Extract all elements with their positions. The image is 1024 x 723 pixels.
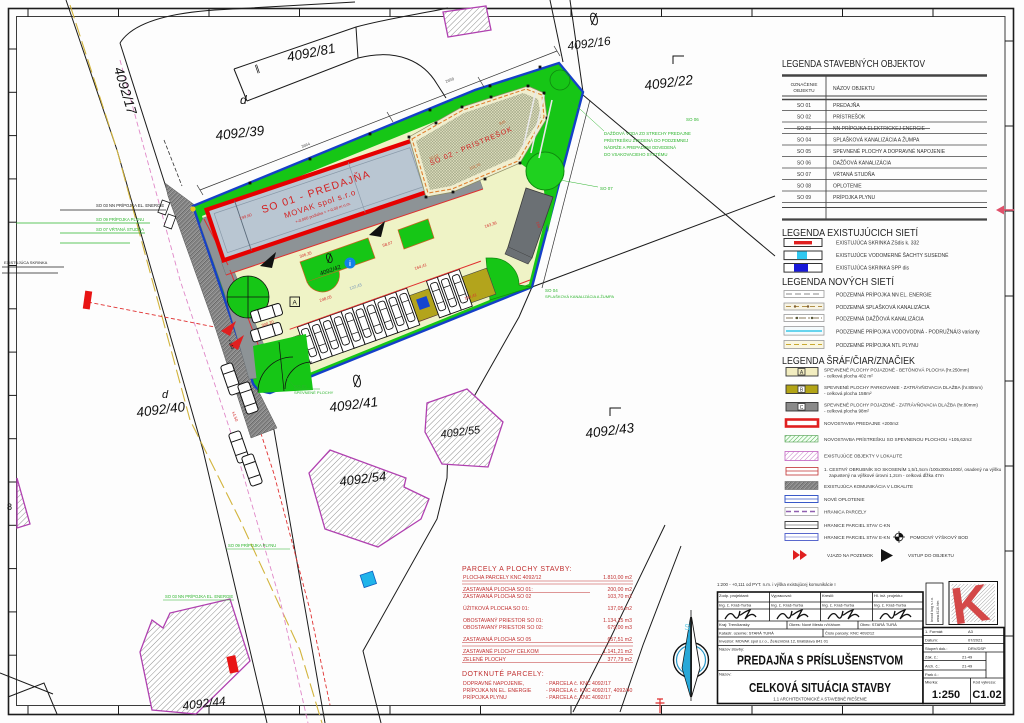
svg-text:SO 09 PRÍPOJKA PLYNU: SO 09 PRÍPOJKA PLYNU bbox=[228, 543, 276, 548]
svg-text:SO 06: SO 06 bbox=[797, 161, 811, 167]
svg-text:EXISTUJÚCE OBJEKTY V LOKALITE: EXISTUJÚCE OBJEKTY V LOKALITE bbox=[824, 453, 902, 459]
svg-text:137,05 m2: 137,05 m2 bbox=[607, 606, 632, 612]
svg-text:SPLAŠKOVÁ KANALIZÁCIA A ŽUMPA: SPLAŠKOVÁ KANALIZÁCIA A ŽUMPA bbox=[545, 294, 614, 299]
svg-text:PREDAJŇA: PREDAJŇA bbox=[833, 102, 860, 109]
svg-text:Názov:: Názov: bbox=[719, 672, 731, 677]
svg-text:DO VSAKOVACIEHO SYSTÉMU: DO VSAKOVACIEHO SYSTÉMU bbox=[604, 152, 667, 157]
svg-text:SO 02: SO 02 bbox=[797, 115, 811, 121]
svg-text:NÁDRŽE A PREPADOM ODVEDENÁ: NÁDRŽE A PREPADOM ODVEDENÁ bbox=[604, 145, 676, 150]
svg-text:ZASTAVANÁ PLOCHA SO 02: ZASTAVANÁ PLOCHA SO 02 bbox=[463, 593, 531, 600]
svg-text:EXISTUJÚCA SKRINKA SPP dis: EXISTUJÚCA SKRINKA SPP dis bbox=[836, 265, 909, 272]
svg-text:VJAZD NA POZEMOK: VJAZD NA POZEMOK bbox=[827, 553, 874, 558]
svg-text:Stupeň dok.:: Stupeň dok.: bbox=[925, 646, 947, 651]
svg-text:DAŽĎOVÁ VODA ZO STRECHY PREDAJ: DAŽĎOVÁ VODA ZO STRECHY PREDAJNE bbox=[604, 131, 691, 136]
svg-text:d: d bbox=[162, 389, 169, 401]
svg-text:PLOCHA PARCELY KNC 4092/12: PLOCHA PARCELY KNC 4092/12 bbox=[463, 575, 542, 581]
svg-text:Kreslil:: Kreslil: bbox=[822, 593, 834, 598]
svg-text:SPLAŠKOVÁ KANALIZÁCIA A ŽUMPA: SPLAŠKOVÁ KANALIZÁCIA A ŽUMPA bbox=[833, 136, 920, 144]
svg-text:- PARCELA č. KNC 4092/17: - PARCELA č. KNC 4092/17 bbox=[546, 681, 611, 687]
svg-text:Ing. Ľ. Kraš-Turba: Ing. Ľ. Kraš-Turba bbox=[771, 603, 804, 608]
svg-text:CELKOVÁ SITUÁCIA STAVBY: CELKOVÁ SITUÁCIA STAVBY bbox=[749, 680, 891, 695]
svg-text:PRÍSTREŠKU ZVEDENÁ DO PODZEMNE: PRÍSTREŠKU ZVEDENÁ DO PODZEMNEJ bbox=[604, 138, 688, 143]
svg-text:- celková plocha 98m²: - celková plocha 98m² bbox=[824, 409, 869, 414]
svg-text:ZASTAVANÁ PLOCHA SO 05: ZASTAVANÁ PLOCHA SO 05 bbox=[463, 636, 531, 643]
svg-text:OBOSTAVANÝ PRIESTOR SO 01:: OBOSTAVANÝ PRIESTOR SO 01: bbox=[463, 617, 543, 624]
svg-text:PRÍPOJKA PLYNU: PRÍPOJKA PLYNU bbox=[833, 194, 876, 201]
svg-text:657,51 m2: 657,51 m2 bbox=[607, 637, 632, 643]
svg-text:SPEVNENÉ PLOCHY POJAZDNÉ - BET: SPEVNENÉ PLOCHY POJAZDNÉ - BETÓNOVÁ PLOC… bbox=[824, 367, 970, 373]
svg-text:A3: A3 bbox=[968, 629, 974, 634]
svg-text:PRÍSTREŠOK: PRÍSTREŠOK bbox=[833, 114, 866, 121]
svg-text:Vypracoval:: Vypracoval: bbox=[771, 593, 792, 598]
svg-text:EXISTUJÚCA SKRINKA: EXISTUJÚCA SKRINKA bbox=[4, 260, 48, 265]
svg-text:1.1 ARCHITEKTONICKÉ A STAVEBNÉ: 1.1 ARCHITEKTONICKÉ A STAVEBNÉ RIEŠENIE bbox=[773, 697, 867, 702]
svg-text:LEGENDA ŠRÁF/ČIAR/ZNAČIEK: LEGENDA ŠRÁF/ČIAR/ZNAČIEK bbox=[782, 354, 915, 367]
svg-text:SO 07: SO 07 bbox=[600, 186, 613, 191]
svg-text:1.810,00 m2: 1.810,00 m2 bbox=[603, 575, 632, 581]
svg-text:1.141,21 m2: 1.141,21 m2 bbox=[603, 649, 632, 655]
svg-text:C: C bbox=[800, 405, 804, 411]
svg-text:1.134,15 m3: 1.134,15 m3 bbox=[603, 618, 632, 624]
svg-text:LEGENDA NOVÝCH SIETÍ: LEGENDA NOVÝCH SIETÍ bbox=[782, 275, 894, 288]
svg-text:07/2021: 07/2021 bbox=[968, 638, 983, 643]
svg-text:EXISTUJÚCA KOMUNIKÁCIA V LOKAL: EXISTUJÚCA KOMUNIKÁCIA V LOKALITE bbox=[824, 483, 913, 489]
svg-text:SPEVNENÉ PLOCHY PARKOVANIE - Z: SPEVNENÉ PLOCHY PARKOVANIE - ZATRÁVŇOVAC… bbox=[824, 383, 983, 390]
svg-text:Ing. Ľ. Kraš-Turba: Ing. Ľ. Kraš-Turba bbox=[874, 603, 907, 608]
svg-text:Hl. inž. projektu:: Hl. inž. projektu: bbox=[874, 593, 903, 598]
svg-text:LEGENDA EXISTUJÚCICH SIETÍ: LEGENDA EXISTUJÚCICH SIETÍ bbox=[782, 226, 918, 239]
svg-text:SO 09: SO 09 bbox=[797, 195, 811, 201]
svg-text:Investor: MOVAK spol s.r.o., Ž: Investor: MOVAK spol s.r.o., Železničná … bbox=[719, 639, 829, 644]
svg-text:- celková plocha 402 m²: - celková plocha 402 m² bbox=[824, 374, 873, 379]
svg-text:SO 06: SO 06 bbox=[686, 117, 699, 122]
svg-text:C1.02: C1.02 bbox=[972, 689, 1001, 701]
svg-text:SO 01: SO 01 bbox=[797, 103, 811, 109]
svg-text:SO 05: SO 05 bbox=[797, 149, 811, 155]
svg-text:SO 04: SO 04 bbox=[797, 138, 811, 144]
svg-text:Dátum:: Dátum: bbox=[925, 638, 938, 643]
svg-text:Okres: Nové Mesto n/Váhom: Okres: Nové Mesto n/Váhom bbox=[789, 622, 841, 627]
svg-text:1:200 - +0,111 od PYT. n.m.: 1:200 - +0,111 od PYT. n.m. i výška exis… bbox=[717, 582, 836, 587]
svg-text:d: d bbox=[240, 93, 247, 107]
svg-text:Ing. Ľ. Kraš-Turba: Ing. Ľ. Kraš-Turba bbox=[719, 603, 752, 608]
svg-text:PREDAJŇA S PRÍSLUŠENSTVOM: PREDAJŇA S PRÍSLUŠENSTVOM bbox=[737, 653, 903, 668]
svg-text:SO 03 NN PRÍPOJKA EL. ENERGIE: SO 03 NN PRÍPOJKA EL. ENERGIE bbox=[165, 594, 233, 599]
svg-text:Zák. č.:: Zák. č.: bbox=[925, 655, 938, 660]
svg-text:PRÍPOJKA PLYNU: PRÍPOJKA PLYNU bbox=[463, 694, 507, 701]
svg-text:SO 03: SO 03 bbox=[797, 126, 811, 132]
svg-text:SO 08: SO 08 bbox=[797, 184, 811, 190]
svg-text:NÁZOV OBJEKTU: NÁZOV OBJEKTU bbox=[833, 85, 875, 92]
svg-text:21-49: 21-49 bbox=[962, 664, 973, 669]
svg-text:S: S bbox=[684, 623, 689, 632]
svg-text:www.6116.htm: www.6116.htm bbox=[936, 600, 940, 622]
svg-text:EXISTUJÚCA SKRINKA ZSdis k. 33: EXISTUJÚCA SKRINKA ZSdis k. 332 bbox=[836, 240, 919, 247]
svg-text:- PARCELA č. KNC 4092/17: - PARCELA č. KNC 4092/17 bbox=[546, 695, 611, 701]
svg-text:OZNAČENIE: OZNAČENIE bbox=[791, 81, 818, 87]
svg-text:21-49: 21-49 bbox=[962, 655, 973, 660]
svg-text:SPEVNENÉ PLOCHY A DOPRAVNÉ NAP: SPEVNENÉ PLOCHY A DOPRAVNÉ NAPOJENIE bbox=[833, 148, 946, 155]
svg-text:1. CESTNÝ OBRUBNÍK SO SKOSENÍM: 1. CESTNÝ OBRUBNÍK SO SKOSENÍM 1,5/1,5cm… bbox=[824, 466, 1002, 472]
svg-text:Park č.:: Park č.: bbox=[925, 672, 939, 677]
svg-text:DAŽĎOVÁ KANALIZÁCIA: DAŽĎOVÁ KANALIZÁCIA bbox=[833, 159, 892, 167]
svg-text:679,00 m3: 679,00 m3 bbox=[607, 625, 632, 631]
svg-text:1:250: 1:250 bbox=[932, 689, 960, 701]
svg-text:PODZEMNÁ SPLAŠKOVÁ KANALIZÁCIA: PODZEMNÁ SPLAŠKOVÁ KANALIZÁCIA bbox=[836, 304, 930, 311]
svg-text:SO 07: SO 07 bbox=[797, 172, 811, 178]
svg-text:SPEVNENÉ PLOCHY: SPEVNENÉ PLOCHY bbox=[294, 390, 334, 395]
svg-text:HRANICE PARCIEL STAV E-KN: HRANICE PARCIEL STAV E-KN bbox=[824, 535, 890, 540]
svg-text:Arch. č.:: Arch. č.: bbox=[925, 664, 940, 669]
svg-text:PODZEMNÁ DAŽĎOVÁ KANALIZÁCIA: PODZEMNÁ DAŽĎOVÁ KANALIZÁCIA bbox=[836, 315, 924, 323]
svg-text:PODZEMNÁ PRÍPOJKA NN EL. ENERG: PODZEMNÁ PRÍPOJKA NN EL. ENERGIE bbox=[836, 292, 932, 299]
svg-text:Katastr. územie: STARÁ TURÁ: Katastr. územie: STARÁ TURÁ bbox=[719, 631, 774, 636]
svg-text:SPEVNENÉ PLOCHY POJAZDNÉ - ZAT: SPEVNENÉ PLOCHY POJAZDNÉ - ZATRÁVŇOVACIA… bbox=[824, 401, 978, 408]
svg-text:ZASTAVANÉ PLOCHY CELKOM: ZASTAVANÉ PLOCHY CELKOM bbox=[463, 648, 539, 655]
svg-text:Zodp. projektant:: Zodp. projektant: bbox=[719, 593, 749, 598]
svg-text:VSTUP DO OBJEKTU: VSTUP DO OBJEKTU bbox=[908, 553, 954, 558]
svg-text:OPLOTENIE: OPLOTENIE bbox=[833, 184, 862, 190]
svg-text:NOVOSTAVBA PRÍSTREŠKU SO SPEVN: NOVOSTAVBA PRÍSTREŠKU SO SPEVNENOU PLOCH… bbox=[824, 436, 972, 442]
svg-text:HRANICE PARCIEL STAV C-KN: HRANICE PARCIEL STAV C-KN bbox=[824, 523, 890, 528]
svg-text:377,79 m2: 377,79 m2 bbox=[607, 657, 632, 663]
svg-text:Ing. Ľ. Kraš-Turba: Ing. Ľ. Kraš-Turba bbox=[822, 603, 855, 608]
svg-text:SO 04: SO 04 bbox=[545, 288, 558, 293]
svg-text:PRÍPOJKA NN EL. ENERGIE: PRÍPOJKA NN EL. ENERGIE bbox=[463, 687, 532, 694]
svg-text:NOVOSTAVBA PREDAJNE +200m2: NOVOSTAVBA PREDAJNE +200m2 bbox=[824, 421, 899, 426]
svg-text:VŔTANÁ STUDŇA: VŔTANÁ STUDŇA bbox=[833, 171, 876, 178]
svg-text:NOVÉ OPLOTENIE: NOVÉ OPLOTENIE bbox=[824, 496, 865, 502]
svg-text:ZASTAVANÁ PLOCHA SO 01:: ZASTAVANÁ PLOCHA SO 01: bbox=[463, 586, 533, 593]
svg-text:Obec: STARÁ TURÁ: Obec: STARÁ TURÁ bbox=[860, 622, 897, 627]
svg-text:8: 8 bbox=[7, 502, 12, 512]
svg-text:HRANICA PARCELY: HRANICA PARCELY bbox=[824, 510, 866, 515]
svg-text:103,70 m2: 103,70 m2 bbox=[607, 594, 632, 600]
svg-text:A: A bbox=[293, 300, 298, 307]
svg-text:PODZEMNÉ PRÍPOJKA VODOVODNÁ -: PODZEMNÉ PRÍPOJKA VODOVODNÁ - PODRUŽNÁ/3… bbox=[836, 328, 980, 336]
svg-text:PARCELY A PLOCHY STAVBY:: PARCELY A PLOCHY STAVBY: bbox=[462, 566, 572, 573]
svg-text:200,00 m2: 200,00 m2 bbox=[607, 587, 632, 593]
svg-text:SO 03 NN PRÍPOJKA EL. ENERGIE: SO 03 NN PRÍPOJKA EL. ENERGIE bbox=[96, 203, 164, 208]
svg-text:- celková plocha 158m²: - celková plocha 158m² bbox=[824, 391, 872, 396]
svg-text:ZELENÉ PLOCHY: ZELENÉ PLOCHY bbox=[463, 656, 506, 663]
svg-text:- PARCELA č. KNC 4092/17, 409: - PARCELA č. KNC 4092/17, 4092/40 bbox=[546, 688, 633, 694]
svg-text:EXISTUJÚCE VODOMERNÉ ŠACHTY SU: EXISTUJÚCE VODOMERNÉ ŠACHTY SUSEDNÉ bbox=[836, 252, 949, 259]
svg-text:DOPRAVNÉ NAPOJENIE,: DOPRAVNÉ NAPOJENIE, bbox=[463, 680, 524, 687]
svg-text:ÚŽITKOVÁ PLOCHA SO 01:: ÚŽITKOVÁ PLOCHA SO 01: bbox=[463, 604, 529, 612]
svg-text:SO 07 VŔTANÁ STUDŇA: SO 07 VŔTANÁ STUDŇA bbox=[96, 227, 144, 232]
svg-text:zapustený na výškové úrovni 1,: zapustený na výškové úrovni 1,2cm - celk… bbox=[829, 472, 944, 478]
svg-text:OBJEKTU: OBJEKTU bbox=[793, 88, 814, 93]
svg-text:LEGENDA STAVEBNÝCH OBJEKTOV: LEGENDA STAVEBNÝCH OBJEKTOV bbox=[782, 57, 925, 70]
svg-text:OBOSTAVANÝ PRIESTOR SO 02:: OBOSTAVANÝ PRIESTOR SO 02: bbox=[463, 624, 543, 631]
svg-text:Číslo parcely: KNC 4092/12: Číslo parcely: KNC 4092/12 bbox=[825, 631, 875, 636]
svg-text:POMOCNÝ VÝŠKOVÝ BOD: POMOCNÝ VÝŠKOVÝ BOD bbox=[910, 534, 969, 540]
svg-text:Mierka:: Mierka: bbox=[925, 680, 938, 685]
svg-text:1. Formát:: 1. Formát: bbox=[925, 629, 943, 634]
svg-text:DRV/DSP: DRV/DSP bbox=[968, 646, 986, 651]
svg-text:i: i bbox=[349, 261, 351, 268]
svg-text:SO 05: SO 05 bbox=[294, 384, 307, 389]
svg-text:brood bog s.r.o.: brood bog s.r.o. bbox=[930, 597, 934, 622]
svg-text:PODZEMNÉ PRÍPOJKA NTL PLYNU: PODZEMNÉ PRÍPOJKA NTL PLYNU bbox=[836, 342, 919, 349]
svg-text:Kód výkresu:: Kód výkresu: bbox=[973, 680, 996, 685]
svg-text:DOTKNUTÉ PARCELY:: DOTKNUTÉ PARCELY: bbox=[462, 669, 544, 678]
svg-text:SO 09 PRÍPOJKA PLYNU: SO 09 PRÍPOJKA PLYNU bbox=[96, 217, 144, 222]
svg-text:Kraj: Trenčiansky: Kraj: Trenčiansky bbox=[719, 622, 750, 627]
svg-text:Názov stavby:: Názov stavby: bbox=[719, 647, 744, 652]
